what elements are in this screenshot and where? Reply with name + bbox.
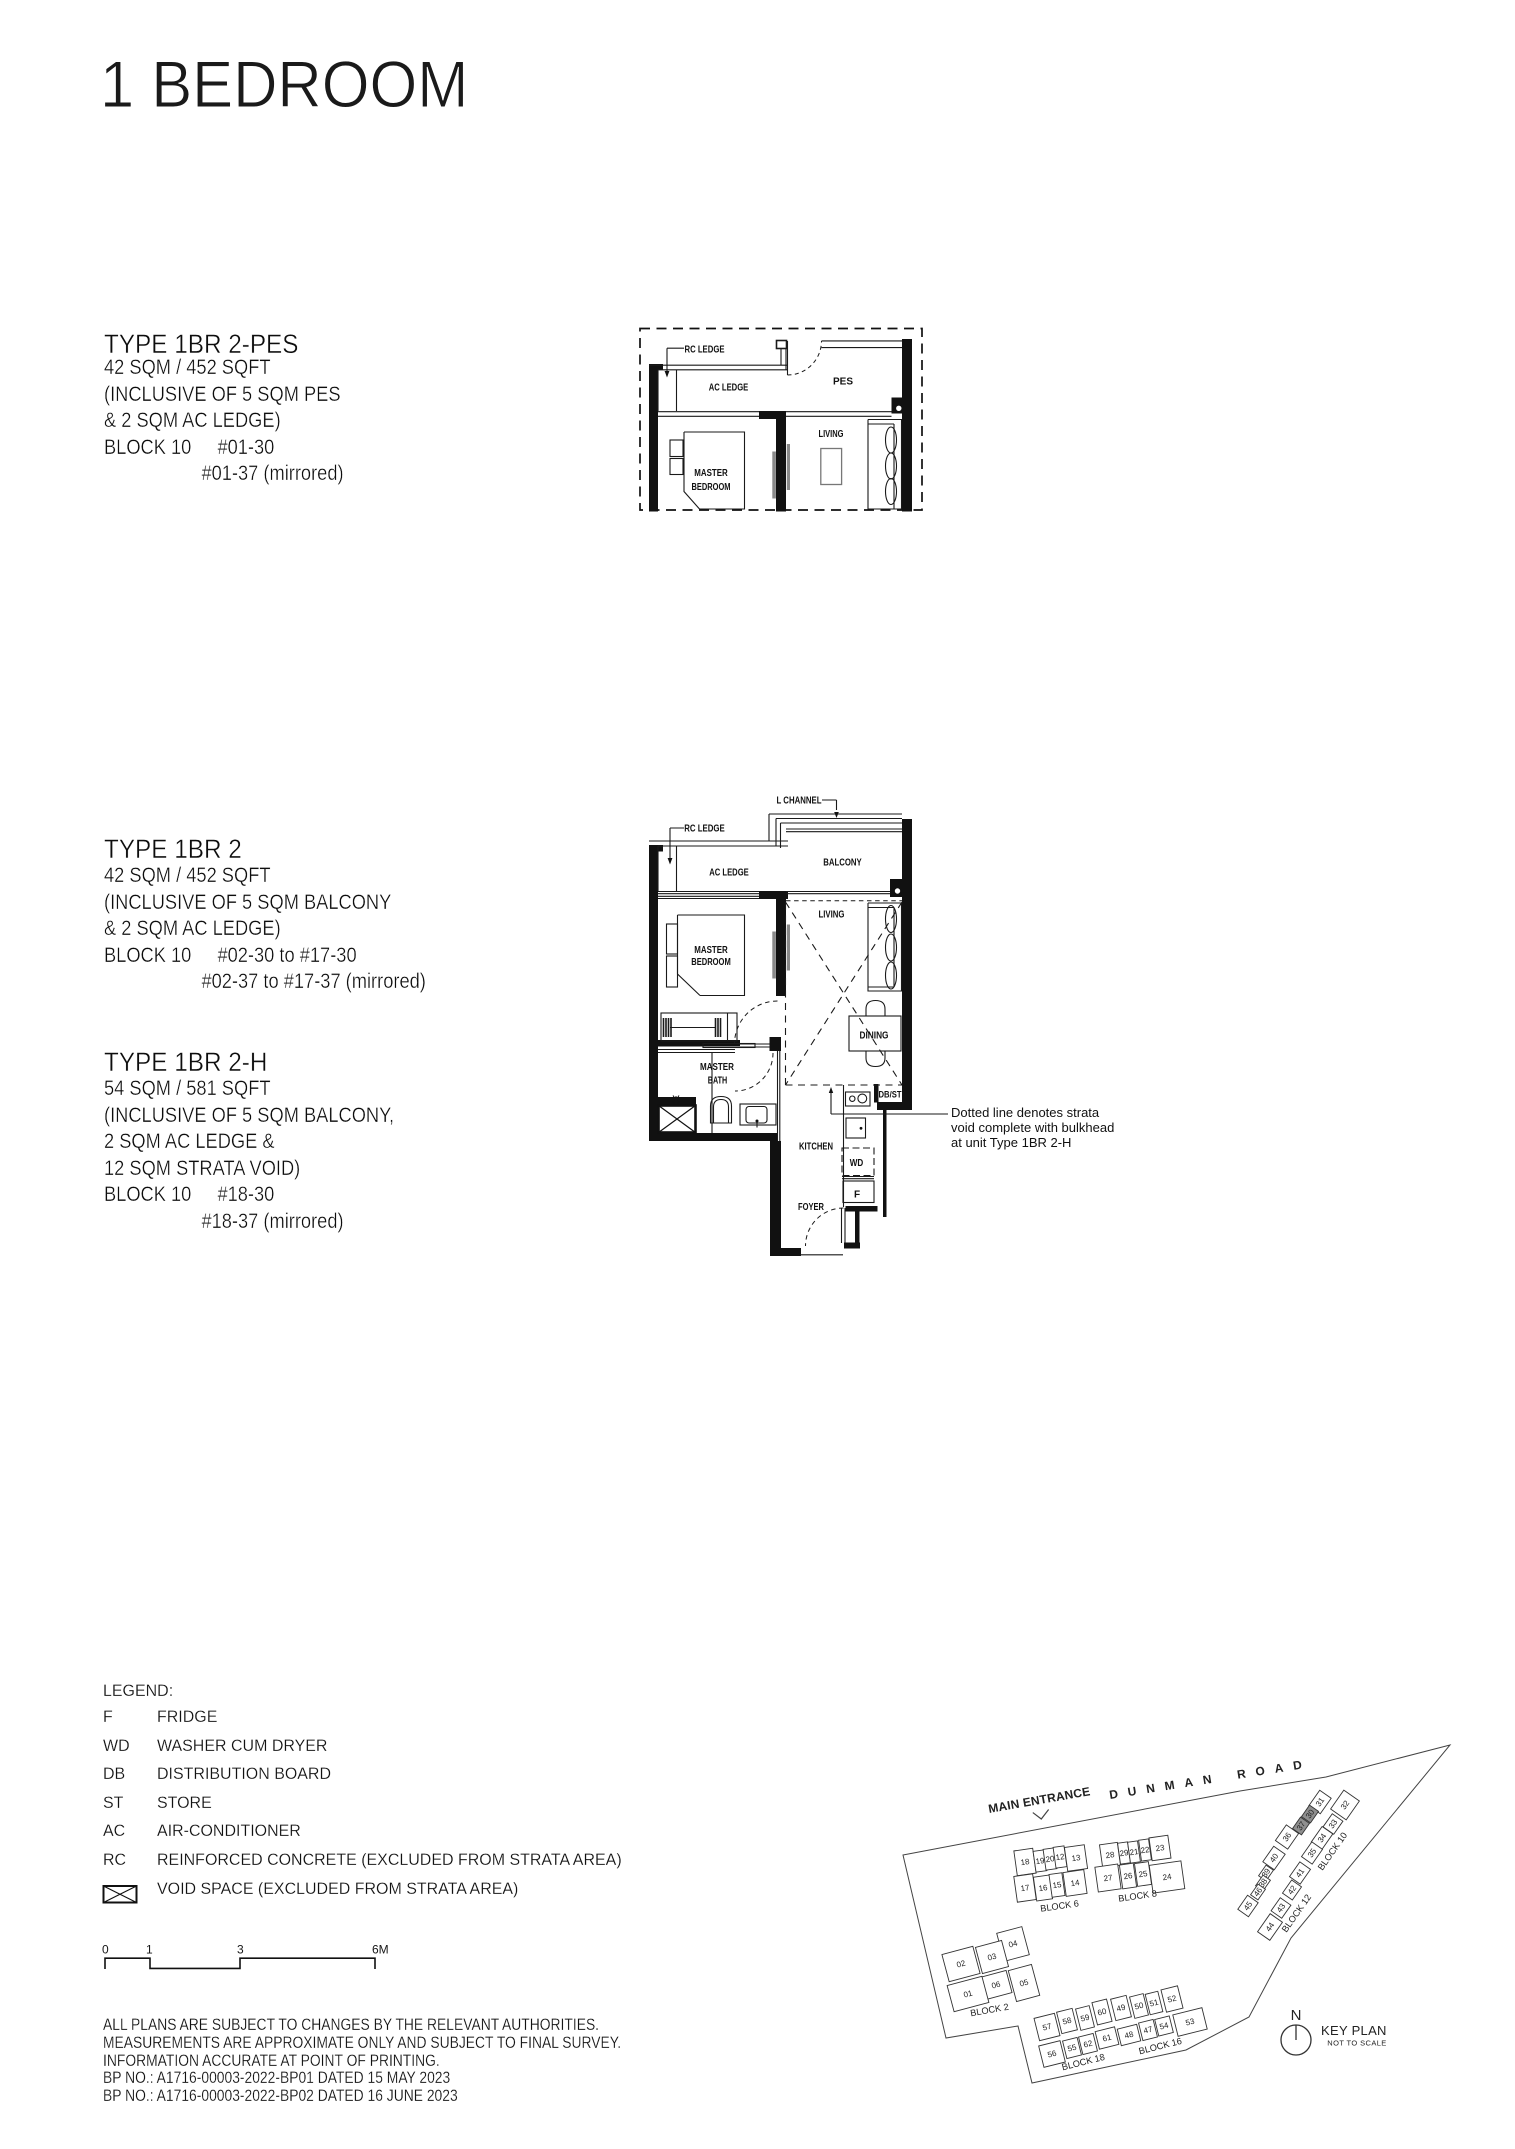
svg-text:18: 18 bbox=[1020, 1857, 1031, 1867]
svg-text:DINING: DINING bbox=[860, 1031, 889, 1042]
svg-text:MASTER: MASTER bbox=[694, 945, 728, 956]
svg-text:24: 24 bbox=[1162, 1872, 1173, 1882]
svg-text:1: 1 bbox=[146, 1943, 153, 1957]
svg-text:BEDROOM: BEDROOM bbox=[692, 482, 731, 493]
svg-text:25: 25 bbox=[1138, 1869, 1149, 1879]
svg-text:DB/ST: DB/ST bbox=[879, 1090, 902, 1100]
svg-text:MAIN ENTRANCE: MAIN ENTRANCE bbox=[987, 1784, 1091, 1816]
svg-text:12: 12 bbox=[1055, 1852, 1066, 1862]
svg-text:RC LEDGE: RC LEDGE bbox=[684, 823, 725, 834]
svg-text:BLOCK 8: BLOCK 8 bbox=[1118, 1888, 1158, 1903]
svg-text:6M: 6M bbox=[372, 1943, 389, 1957]
svg-text:21: 21 bbox=[1129, 1847, 1140, 1857]
svg-text:29: 29 bbox=[1119, 1848, 1130, 1858]
svg-text:BALCONY: BALCONY bbox=[823, 858, 862, 869]
svg-text:F: F bbox=[854, 1190, 860, 1201]
svg-text:17: 17 bbox=[1020, 1883, 1031, 1893]
svg-text:16: 16 bbox=[1038, 1883, 1049, 1893]
svg-text:28: 28 bbox=[1105, 1850, 1116, 1860]
svg-text:19: 19 bbox=[1035, 1856, 1046, 1866]
svg-text:26: 26 bbox=[1123, 1871, 1134, 1881]
svg-text:15: 15 bbox=[1052, 1880, 1063, 1890]
svg-text:MASTER: MASTER bbox=[700, 1062, 735, 1073]
svg-text:AC LEDGE: AC LEDGE bbox=[709, 868, 749, 879]
svg-text:BLOCK 6: BLOCK 6 bbox=[1040, 1898, 1080, 1913]
svg-text:3: 3 bbox=[237, 1943, 244, 1957]
svg-text:KITCHEN: KITCHEN bbox=[799, 1142, 833, 1153]
svg-text:DUNMAN ROAD: DUNMAN ROAD bbox=[1108, 1756, 1312, 1802]
svg-text:23: 23 bbox=[1155, 1843, 1166, 1853]
svg-text:20: 20 bbox=[1045, 1854, 1056, 1864]
svg-text:13: 13 bbox=[1071, 1853, 1082, 1863]
svg-text:PES: PES bbox=[833, 377, 853, 388]
svg-text:LIVING: LIVING bbox=[819, 429, 844, 440]
svg-text:MASTER: MASTER bbox=[694, 468, 728, 479]
svg-text:22: 22 bbox=[1140, 1845, 1151, 1855]
svg-text:27: 27 bbox=[1103, 1873, 1114, 1883]
svg-text:AC LEDGE: AC LEDGE bbox=[709, 382, 749, 393]
svg-text:BATH: BATH bbox=[708, 1075, 728, 1086]
svg-text:N: N bbox=[1291, 2007, 1302, 2024]
svg-text:NOT TO SCALE: NOT TO SCALE bbox=[1327, 2039, 1386, 2048]
svg-text:BEDROOM: BEDROOM bbox=[691, 957, 731, 968]
svg-text:L CHANNEL: L CHANNEL bbox=[777, 796, 822, 807]
svg-text:14: 14 bbox=[1070, 1878, 1081, 1888]
svg-text:FOYER: FOYER bbox=[798, 1202, 825, 1213]
svg-text:RC LEDGE: RC LEDGE bbox=[685, 344, 725, 355]
svg-text:0: 0 bbox=[102, 1943, 109, 1957]
svg-text:KEY PLAN: KEY PLAN bbox=[1321, 2023, 1387, 2038]
svg-text:LIVING: LIVING bbox=[819, 910, 845, 921]
svg-text:WD: WD bbox=[850, 1158, 864, 1169]
